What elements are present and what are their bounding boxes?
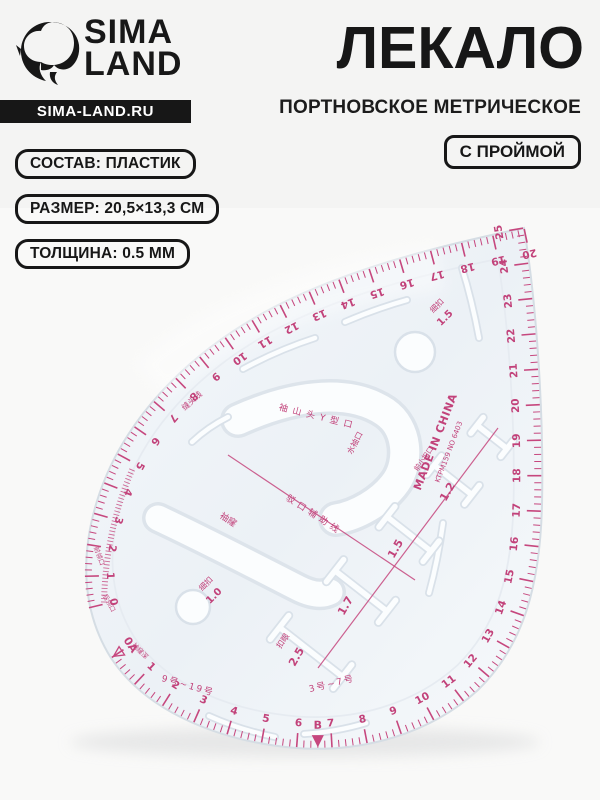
page-title: ЛЕКАЛО [337,18,584,78]
minor-tick [526,306,533,307]
button-hole [395,332,435,372]
minor-tick [527,313,534,314]
vernier-tick [102,578,108,579]
minor-tick [86,557,93,558]
product-card: 2019181716151413121110987654321012345678… [0,0,600,800]
minor-tick [529,341,536,342]
scale-number: 22 [505,328,518,344]
spec-badge-size: РАЗМЕР: 20,5×13,3 СМ [15,194,219,224]
minor-tick [527,320,534,321]
spec-badges: СОСТАВ: ПЛАСТИК РАЗМЕР: 20,5×13,3 СМ ТОЛ… [15,149,219,284]
vernier-tick [103,571,109,572]
minor-tick [533,532,540,533]
page-subtitle: ПОРТНОВСКОЕ МЕТРИЧЕСКОЕ [279,97,581,119]
scale-number: 24 [497,258,511,274]
brand-line2: LAND [84,48,182,80]
spec-badge-material: СОСТАВ: ПЛАСТИК [15,149,196,179]
simaland-bird-logo [16,18,80,88]
scale-number: 21 [508,363,521,378]
scale-number: 16 [508,536,521,552]
scale-number: 20 [510,398,523,413]
spec-badge-thickness: ТОЛЩИНА: 0.5 ММ [15,239,190,269]
minor-tick [290,739,291,746]
major-tick [331,733,332,747]
major-tick [297,733,298,747]
scale-number: 25 [492,224,506,240]
scale-number: 23 [502,293,515,309]
minor-tick [528,327,535,328]
vernier-tick [103,575,109,576]
major-tick [524,369,538,370]
minor-tick [532,539,539,540]
scale-number: 7 [327,717,335,729]
feature-badge: С ПРОЙМОЙ [444,135,581,169]
major-tick [526,405,540,406]
brand-url-badge: SIMA-LAND.RU [0,100,191,123]
scale-number: 19 [511,433,523,448]
scale-number: 6 [294,717,302,730]
scale-number: 17 [511,503,523,518]
button-hole [176,590,210,624]
brand-line1: SIMA [84,16,182,48]
minor-tick [338,740,339,747]
scale-number: 18 [511,468,523,483]
minor-tick [530,348,537,349]
brand-wordmark: SIMA LAND [84,16,182,80]
marker-label-B: B [314,719,322,732]
major-tick [522,334,536,335]
